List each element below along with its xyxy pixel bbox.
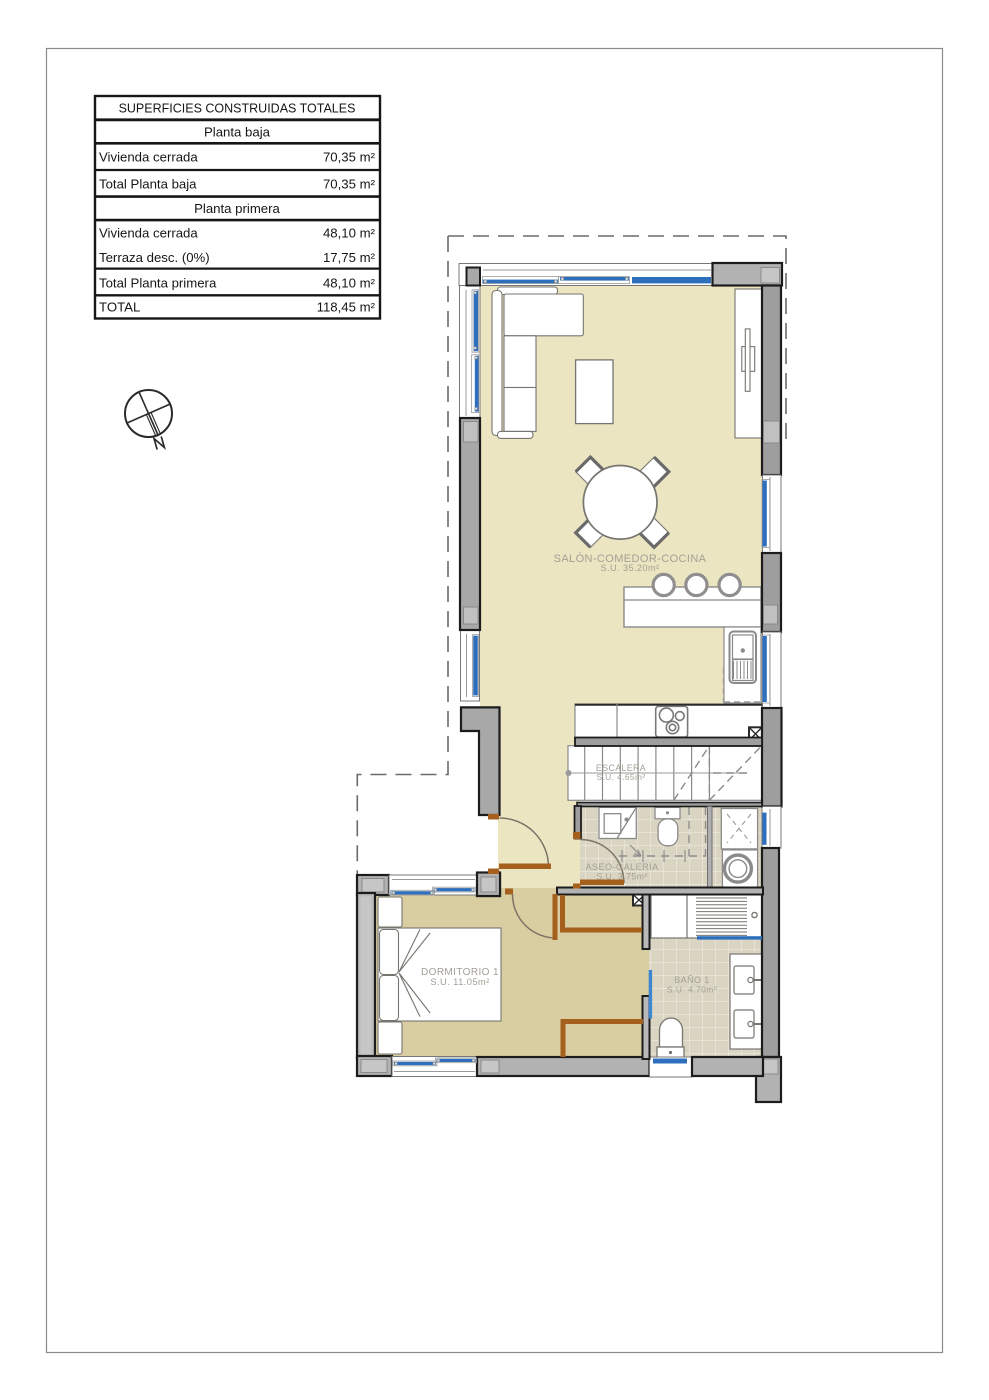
svg-text:TOTAL: TOTAL (99, 300, 140, 315)
svg-text:S.U. 35.20m²: S.U. 35.20m² (601, 563, 660, 573)
svg-text:ASEO-GALERÍA: ASEO-GALERÍA (585, 862, 659, 872)
svg-text:S.U. 3.75m²: S.U. 3.75m² (596, 872, 647, 882)
svg-text:Planta primera: Planta primera (194, 201, 280, 216)
svg-text:48,10 m²: 48,10 m² (323, 276, 376, 291)
svg-text:Total Planta baja: Total Planta baja (99, 177, 197, 192)
svg-text:Vivienda cerrada: Vivienda cerrada (99, 226, 198, 241)
svg-text:Total Planta primera: Total Planta primera (99, 276, 217, 291)
svg-text:Terraza desc. (0%): Terraza desc. (0%) (99, 250, 210, 265)
svg-text:17,75 m²: 17,75 m² (323, 250, 376, 265)
svg-text:Planta baja: Planta baja (204, 125, 271, 140)
svg-text:118,45 m²: 118,45 m² (317, 300, 376, 315)
svg-text:S.U. 4.65m²: S.U. 4.65m² (596, 772, 645, 782)
svg-text:Vivienda cerrada: Vivienda cerrada (99, 150, 198, 165)
svg-text:S.U. 11.05m²: S.U. 11.05m² (430, 976, 489, 987)
svg-text:S.U. 4.70m²: S.U. 4.70m² (667, 985, 717, 995)
svg-text:70,35 m²: 70,35 m² (323, 150, 376, 165)
svg-text:48,10 m²: 48,10 m² (323, 226, 376, 241)
svg-text:70,35 m²: 70,35 m² (323, 177, 376, 192)
svg-text:SUPERFICIES CONSTRUIDAS TOTALE: SUPERFICIES CONSTRUIDAS TOTALES (119, 102, 356, 116)
svg-text:BAÑO 1: BAÑO 1 (674, 975, 709, 985)
